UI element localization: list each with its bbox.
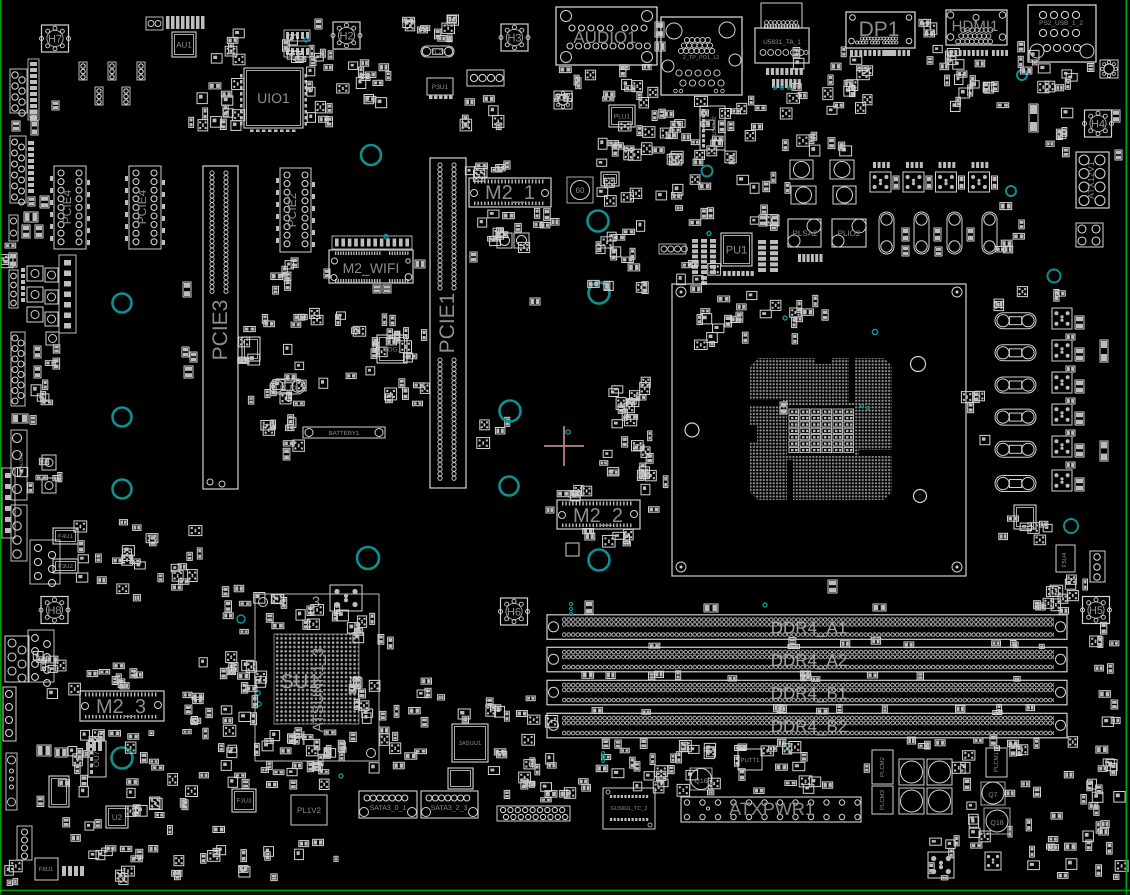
svg-text:UIO1: UIO1 [257,90,290,106]
svg-text:Q16: Q16 [694,778,707,785]
svg-text:UOG1: UOG1 [383,346,402,353]
svg-text:HDMI1: HDMI1 [952,18,999,35]
svg-text:H8: H8 [47,605,61,617]
svg-text:PCIE1: PCIE1 [436,293,459,354]
svg-text:60: 60 [576,186,585,195]
svg-text:F4U1: F4U1 [58,533,73,540]
svg-text:PS2_USB_1_2: PS2_USB_1_2 [1039,20,1083,27]
svg-text:PLSA2: PLSA2 [793,229,818,238]
svg-text:Q7: Q7 [988,792,997,799]
svg-text:Q18: Q18 [990,820,1003,827]
svg-text:PCIE2: PCIE2 [285,192,299,227]
svg-text:F5U4: F5U4 [1061,552,1068,567]
svg-text:SATA3_0_1: SATA3_0_1 [370,805,407,812]
svg-text:DDR4_B2: DDR4_B2 [771,717,848,736]
svg-text:PLIO2: PLIO2 [838,229,861,238]
svg-text:M2_1: M2_1 [485,182,535,204]
svg-text:PU5BU2: PU5BU2 [711,116,718,140]
svg-text:PLCM1: PLCM1 [993,751,1000,772]
svg-text:P3U1: P3U1 [432,84,449,91]
svg-text:U5831_TA_1: U5831_TA_1 [763,39,801,46]
svg-text:U2: U2 [112,813,123,822]
svg-text:M2_2: M2_2 [573,505,623,527]
svg-text:PLCM2: PLCM2 [879,756,886,777]
svg-text:SATA3_2_3: SATA3_2_3 [431,805,468,812]
svg-text:PLCM3: PLCM3 [879,789,886,810]
svg-text:SU1: SU1 [281,671,320,693]
svg-text:PU1: PU1 [726,244,747,256]
svg-text:F8U1: F8U1 [39,866,54,873]
svg-text:F3U2: F3U2 [58,563,73,570]
svg-text:ATXPWR1: ATXPWR1 [729,799,815,819]
svg-text:H5: H5 [1089,605,1103,617]
svg-text:DDR4_A1: DDR4_A1 [771,618,848,637]
svg-text:H4: H4 [1091,119,1105,131]
svg-text:3A5UU1: 3A5UU1 [459,740,482,747]
svg-text:H6: H6 [507,607,521,619]
svg-text:PCIE3: PCIE3 [209,300,232,361]
svg-text:PL1V2: PL1V2 [297,806,322,815]
svg-text:PCIE4: PCIE4 [135,189,149,224]
svg-text:F3U3: F3U3 [237,798,252,805]
svg-text:PLU1: PLU1 [614,113,631,120]
svg-text:OU7: OU7 [92,750,101,767]
svg-text:GU5831_TC_2: GU5831_TC_2 [611,806,648,812]
svg-text:ATX12V1: ATX12V1 [1086,161,1096,199]
svg-text:DDR4_A2: DDR4_A2 [771,651,848,670]
svg-text:H2: H2 [339,31,353,43]
svg-text:PL26: PL26 [430,49,446,56]
svg-text:FP_AUDIO: FP_AUDIO [19,452,25,477]
svg-text:2_TP_PO1_12: 2_TP_PO1_12 [683,55,719,61]
svg-text:PL10: PL10 [280,385,296,392]
svg-text:PCIE4: PCIE4 [60,189,74,224]
svg-text:M2_3: M2_3 [96,696,146,718]
svg-text:M2_WIFI: M2_WIFI [343,260,400,276]
svg-text:PUTT1: PUTT1 [740,757,760,764]
svg-text:3: 3 [312,594,320,611]
svg-text:DDR4_B1: DDR4_B1 [771,684,848,703]
svg-text:H3: H3 [507,33,521,45]
svg-text:AUDIO1: AUDIO1 [573,28,636,47]
svg-text:DP1: DP1 [859,18,900,41]
svg-text:H7: H7 [48,34,62,46]
svg-text:AU1: AU1 [176,40,192,49]
svg-text:BATTERY1: BATTERY1 [329,430,360,437]
